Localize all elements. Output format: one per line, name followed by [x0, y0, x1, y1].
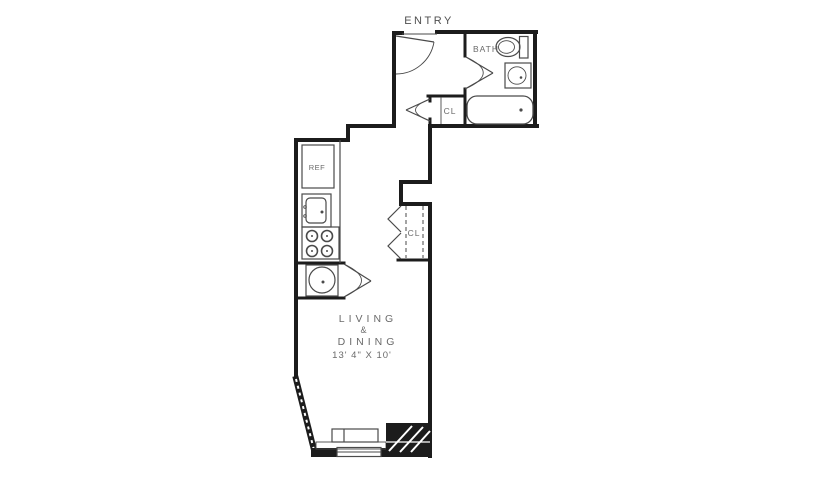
- washer-door-arc: [344, 264, 362, 297]
- washer-drum: [309, 267, 335, 293]
- doors: [344, 34, 493, 297]
- living-label-line2: DINING: [338, 336, 399, 348]
- bathtub-body: [467, 96, 533, 124]
- toilet-tank: [520, 37, 529, 59]
- closet2-bifold-doors: [388, 206, 401, 259]
- bath-label: BATH: [473, 44, 499, 54]
- bath-sink-basin: [508, 67, 526, 84]
- refrigerator-label: REF: [309, 163, 326, 172]
- living-dimensions-label: 13' 4" X 10': [332, 350, 392, 361]
- toilet-icon: [496, 37, 528, 59]
- living-label-amp: &: [360, 325, 367, 335]
- burner2-dot: [326, 235, 328, 237]
- ac-unit: [332, 429, 378, 442]
- kitchen-faucet-knob1: [304, 206, 307, 209]
- entry-door-leaf: [396, 36, 434, 42]
- closet1-door-leaf: [406, 99, 430, 121]
- window-wall: [311, 423, 430, 457]
- burner3-dot: [311, 250, 313, 252]
- burner1-dot: [311, 235, 313, 237]
- washer-door-leaf: [344, 264, 371, 297]
- bath-sink-drain: [520, 76, 523, 79]
- living-label-line1: LIVING: [339, 313, 397, 325]
- bath-door-arc: [465, 57, 483, 89]
- washer-icon: [306, 265, 338, 296]
- closet1-door-arc: [416, 99, 431, 121]
- closet1-label: CL: [444, 106, 457, 116]
- stove-icon: [302, 227, 339, 259]
- entry-label: ENTRY: [404, 15, 454, 27]
- labels: ENTRY BATH CL CL REF LIVING & DINING 13'…: [309, 15, 499, 361]
- toilet-seat: [499, 41, 515, 54]
- floorplan-image: ENTRY BATH CL CL REF LIVING & DINING 13'…: [0, 0, 830, 490]
- kitchen-sink-basin: [306, 198, 326, 223]
- bathtub-drain: [519, 108, 522, 111]
- floorplan-svg: ENTRY BATH CL CL REF LIVING & DINING 13'…: [0, 0, 830, 490]
- bathroom-sink-icon: [505, 63, 531, 88]
- washer-body: [306, 265, 338, 296]
- kitchen-sink-icon: [302, 194, 331, 227]
- kitchen-sink-drain: [321, 211, 324, 214]
- burner4-dot: [326, 250, 328, 252]
- washer-dot: [322, 281, 325, 284]
- bathtub-icon: [467, 96, 533, 124]
- closet2-label: CL: [408, 228, 421, 238]
- kitchen-faucet-knob2: [304, 215, 307, 218]
- entry-door-arc: [396, 42, 434, 74]
- bath-door-leaf: [465, 57, 493, 89]
